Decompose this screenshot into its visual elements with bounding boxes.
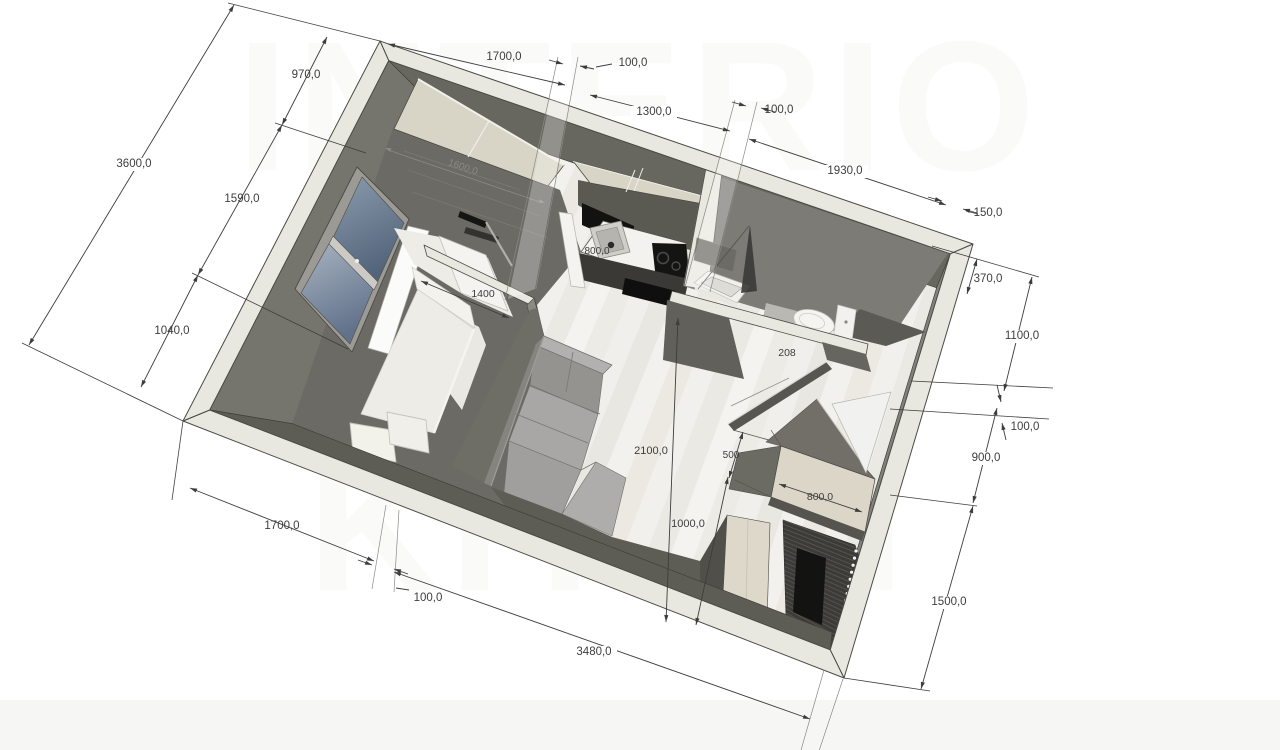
svg-text:208: 208 (778, 347, 796, 359)
svg-text:1700,0: 1700,0 (264, 520, 299, 532)
svg-text:1100,0: 1100,0 (1005, 330, 1039, 342)
svg-text:150,0: 150,0 (974, 207, 1003, 219)
svg-text:3600,0: 3600,0 (116, 158, 151, 170)
svg-text:1500,0: 1500,0 (931, 596, 966, 608)
svg-text:370,0: 370,0 (974, 273, 1003, 285)
svg-text:1700,0: 1700,0 (486, 51, 521, 63)
svg-text:100,0: 100,0 (1011, 421, 1040, 433)
svg-text:1590,0: 1590,0 (224, 193, 259, 205)
svg-text:800,0: 800,0 (807, 491, 833, 503)
svg-text:970,0: 970,0 (292, 69, 321, 81)
svg-text:100,0: 100,0 (765, 104, 794, 116)
svg-text:100,0: 100,0 (619, 57, 648, 69)
svg-text:1300,0: 1300,0 (636, 106, 671, 118)
svg-text:100,0: 100,0 (414, 592, 443, 604)
svg-text:1000,0: 1000,0 (671, 518, 705, 530)
svg-text:900,0: 900,0 (972, 452, 1001, 464)
svg-text:1400: 1400 (471, 288, 495, 300)
svg-text:2100,0: 2100,0 (634, 445, 668, 457)
svg-text:800,0: 800,0 (584, 246, 609, 257)
svg-text:3480,0: 3480,0 (576, 646, 611, 658)
svg-text:1930,0: 1930,0 (827, 165, 862, 177)
svg-text:1040,0: 1040,0 (154, 325, 189, 337)
svg-text:500: 500 (723, 450, 740, 461)
